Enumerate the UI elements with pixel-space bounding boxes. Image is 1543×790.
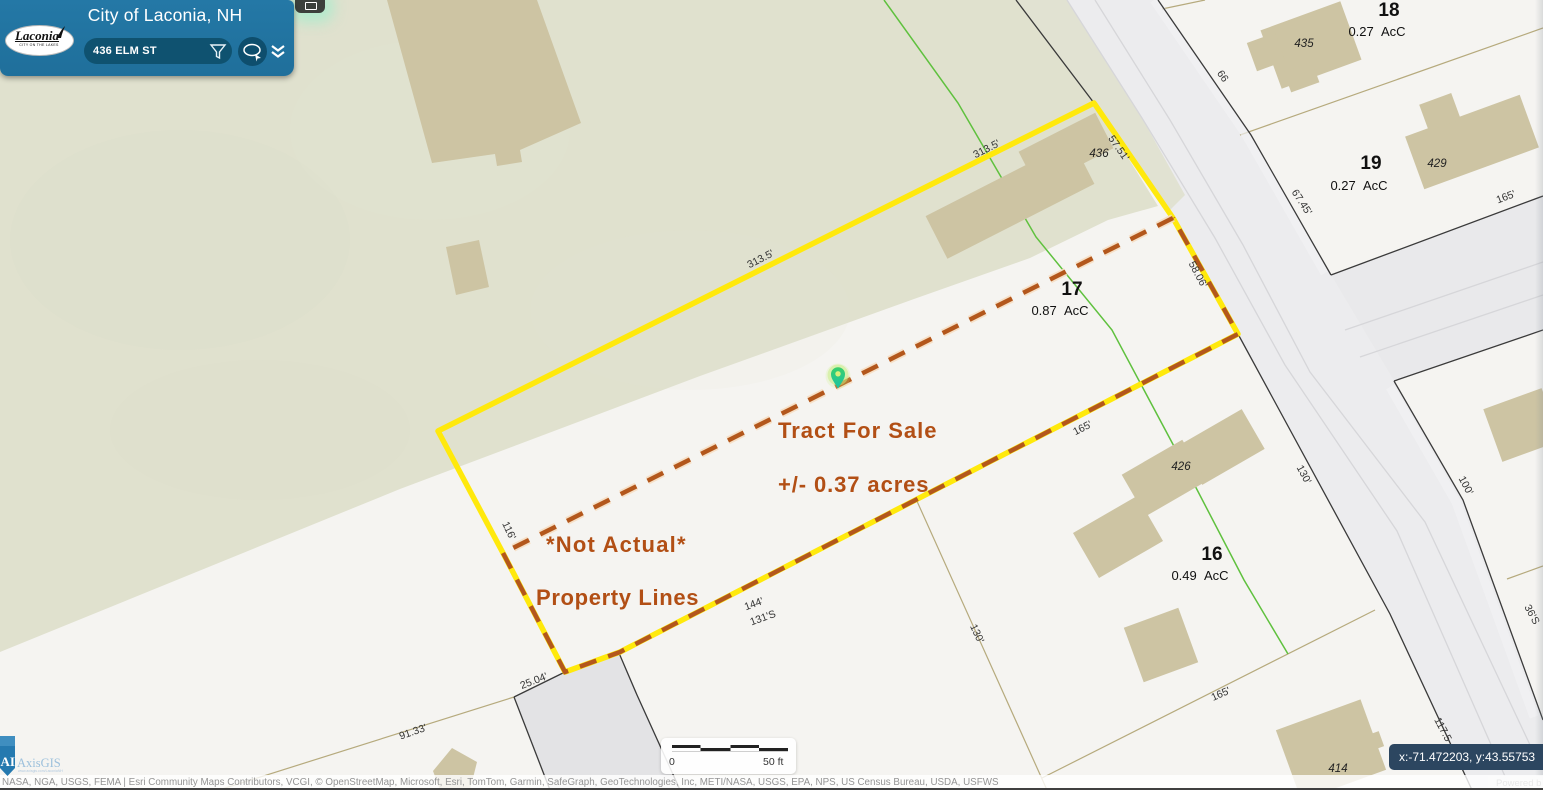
svg-text:91.33': 91.33' (398, 722, 429, 743)
svg-text:130': 130' (967, 622, 986, 645)
svg-text:131'S: 131'S (748, 608, 777, 628)
svg-text:116': 116' (499, 520, 518, 542)
svg-text:0.27 AcC: 0.27 AcC (1348, 24, 1405, 39)
svg-text:436: 436 (1089, 148, 1109, 160)
svg-text:165': 165' (1495, 188, 1518, 206)
svg-text:www.axisgis.com/LaconiaNH: www.axisgis.com/LaconiaNH (18, 769, 63, 773)
svg-text:+/- 0.37 acres: +/- 0.37 acres (778, 472, 929, 497)
svg-text:AI: AI (1, 754, 15, 769)
svg-text:0.87 AcC: 0.87 AcC (1031, 303, 1088, 318)
svg-text:*Not Actual*: *Not Actual* (546, 532, 687, 557)
svg-text:426: 426 (1171, 461, 1191, 473)
svg-text:16: 16 (1201, 544, 1222, 565)
svg-text:19: 19 (1360, 153, 1381, 174)
svg-text:Property Lines: Property Lines (536, 585, 699, 610)
svg-text:435: 435 (1294, 38, 1314, 50)
svg-text:0.27 AcC: 0.27 AcC (1330, 178, 1387, 193)
svg-text:66: 66 (1214, 68, 1231, 85)
svg-text:144': 144' (743, 595, 765, 613)
svg-text:429: 429 (1427, 158, 1447, 170)
svg-text:AxisGIS: AxisGIS (17, 756, 61, 770)
svg-text:0.49 AcC: 0.49 AcC (1171, 568, 1228, 583)
svg-text:414: 414 (1328, 763, 1347, 775)
svg-text:18: 18 (1378, 0, 1399, 21)
svg-text:17: 17 (1061, 279, 1082, 300)
svg-text:Tract For Sale: Tract For Sale (778, 418, 938, 443)
svg-text:165': 165' (1209, 685, 1232, 704)
svg-text:165': 165' (1071, 419, 1094, 439)
